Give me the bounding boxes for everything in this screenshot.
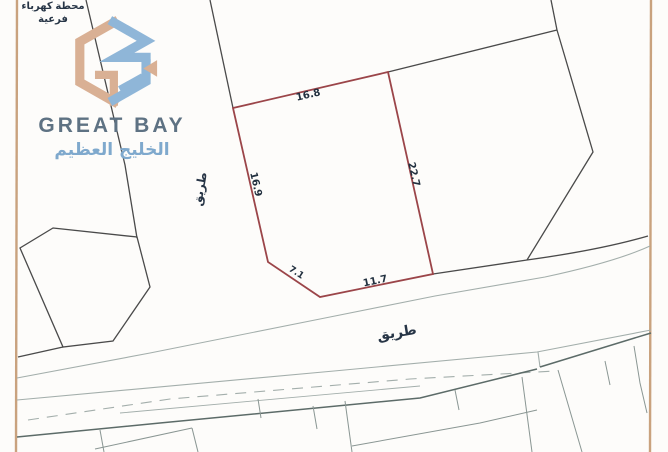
plot-map: 16.8 22.7 16.9 7.1 11.7 طريق طريق محطة ك… [0,0,668,452]
parcel-boundaries [18,0,648,357]
cadastral-map [0,0,668,452]
page-border [16,0,651,452]
highlighted-parcel-outline [233,72,433,297]
road-lines [17,246,651,420]
bottom-lot-lines [95,346,647,452]
